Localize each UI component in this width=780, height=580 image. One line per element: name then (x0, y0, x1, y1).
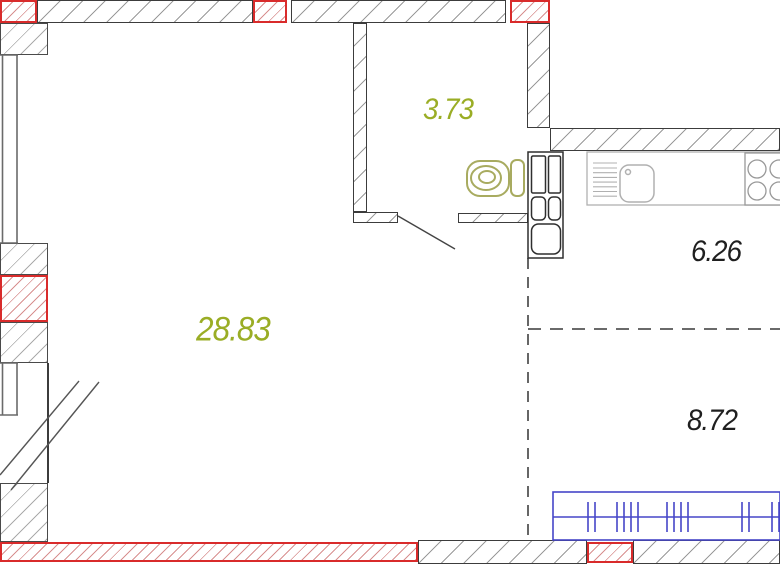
room-area-label: 8.72 (687, 404, 737, 438)
plan-linework (0, 0, 780, 580)
balcony-door-swing-icon (0, 381, 99, 490)
kitchen-area-label: 6.26 (691, 235, 741, 269)
bathroom-door-swing-icon (398, 216, 455, 249)
window-icon (0, 363, 18, 415)
toilet-icon (467, 160, 524, 196)
bathroom-area-label: 3.73 (423, 93, 473, 127)
living-room-area-label: 28.83 (196, 311, 270, 350)
ventilation-shaft-icon (528, 152, 563, 258)
window-icon (0, 55, 18, 243)
floor-plan: 28.83 3.73 6.26 8.72 (0, 0, 780, 580)
stove-icon (745, 153, 780, 205)
radiator-icon (553, 492, 780, 540)
